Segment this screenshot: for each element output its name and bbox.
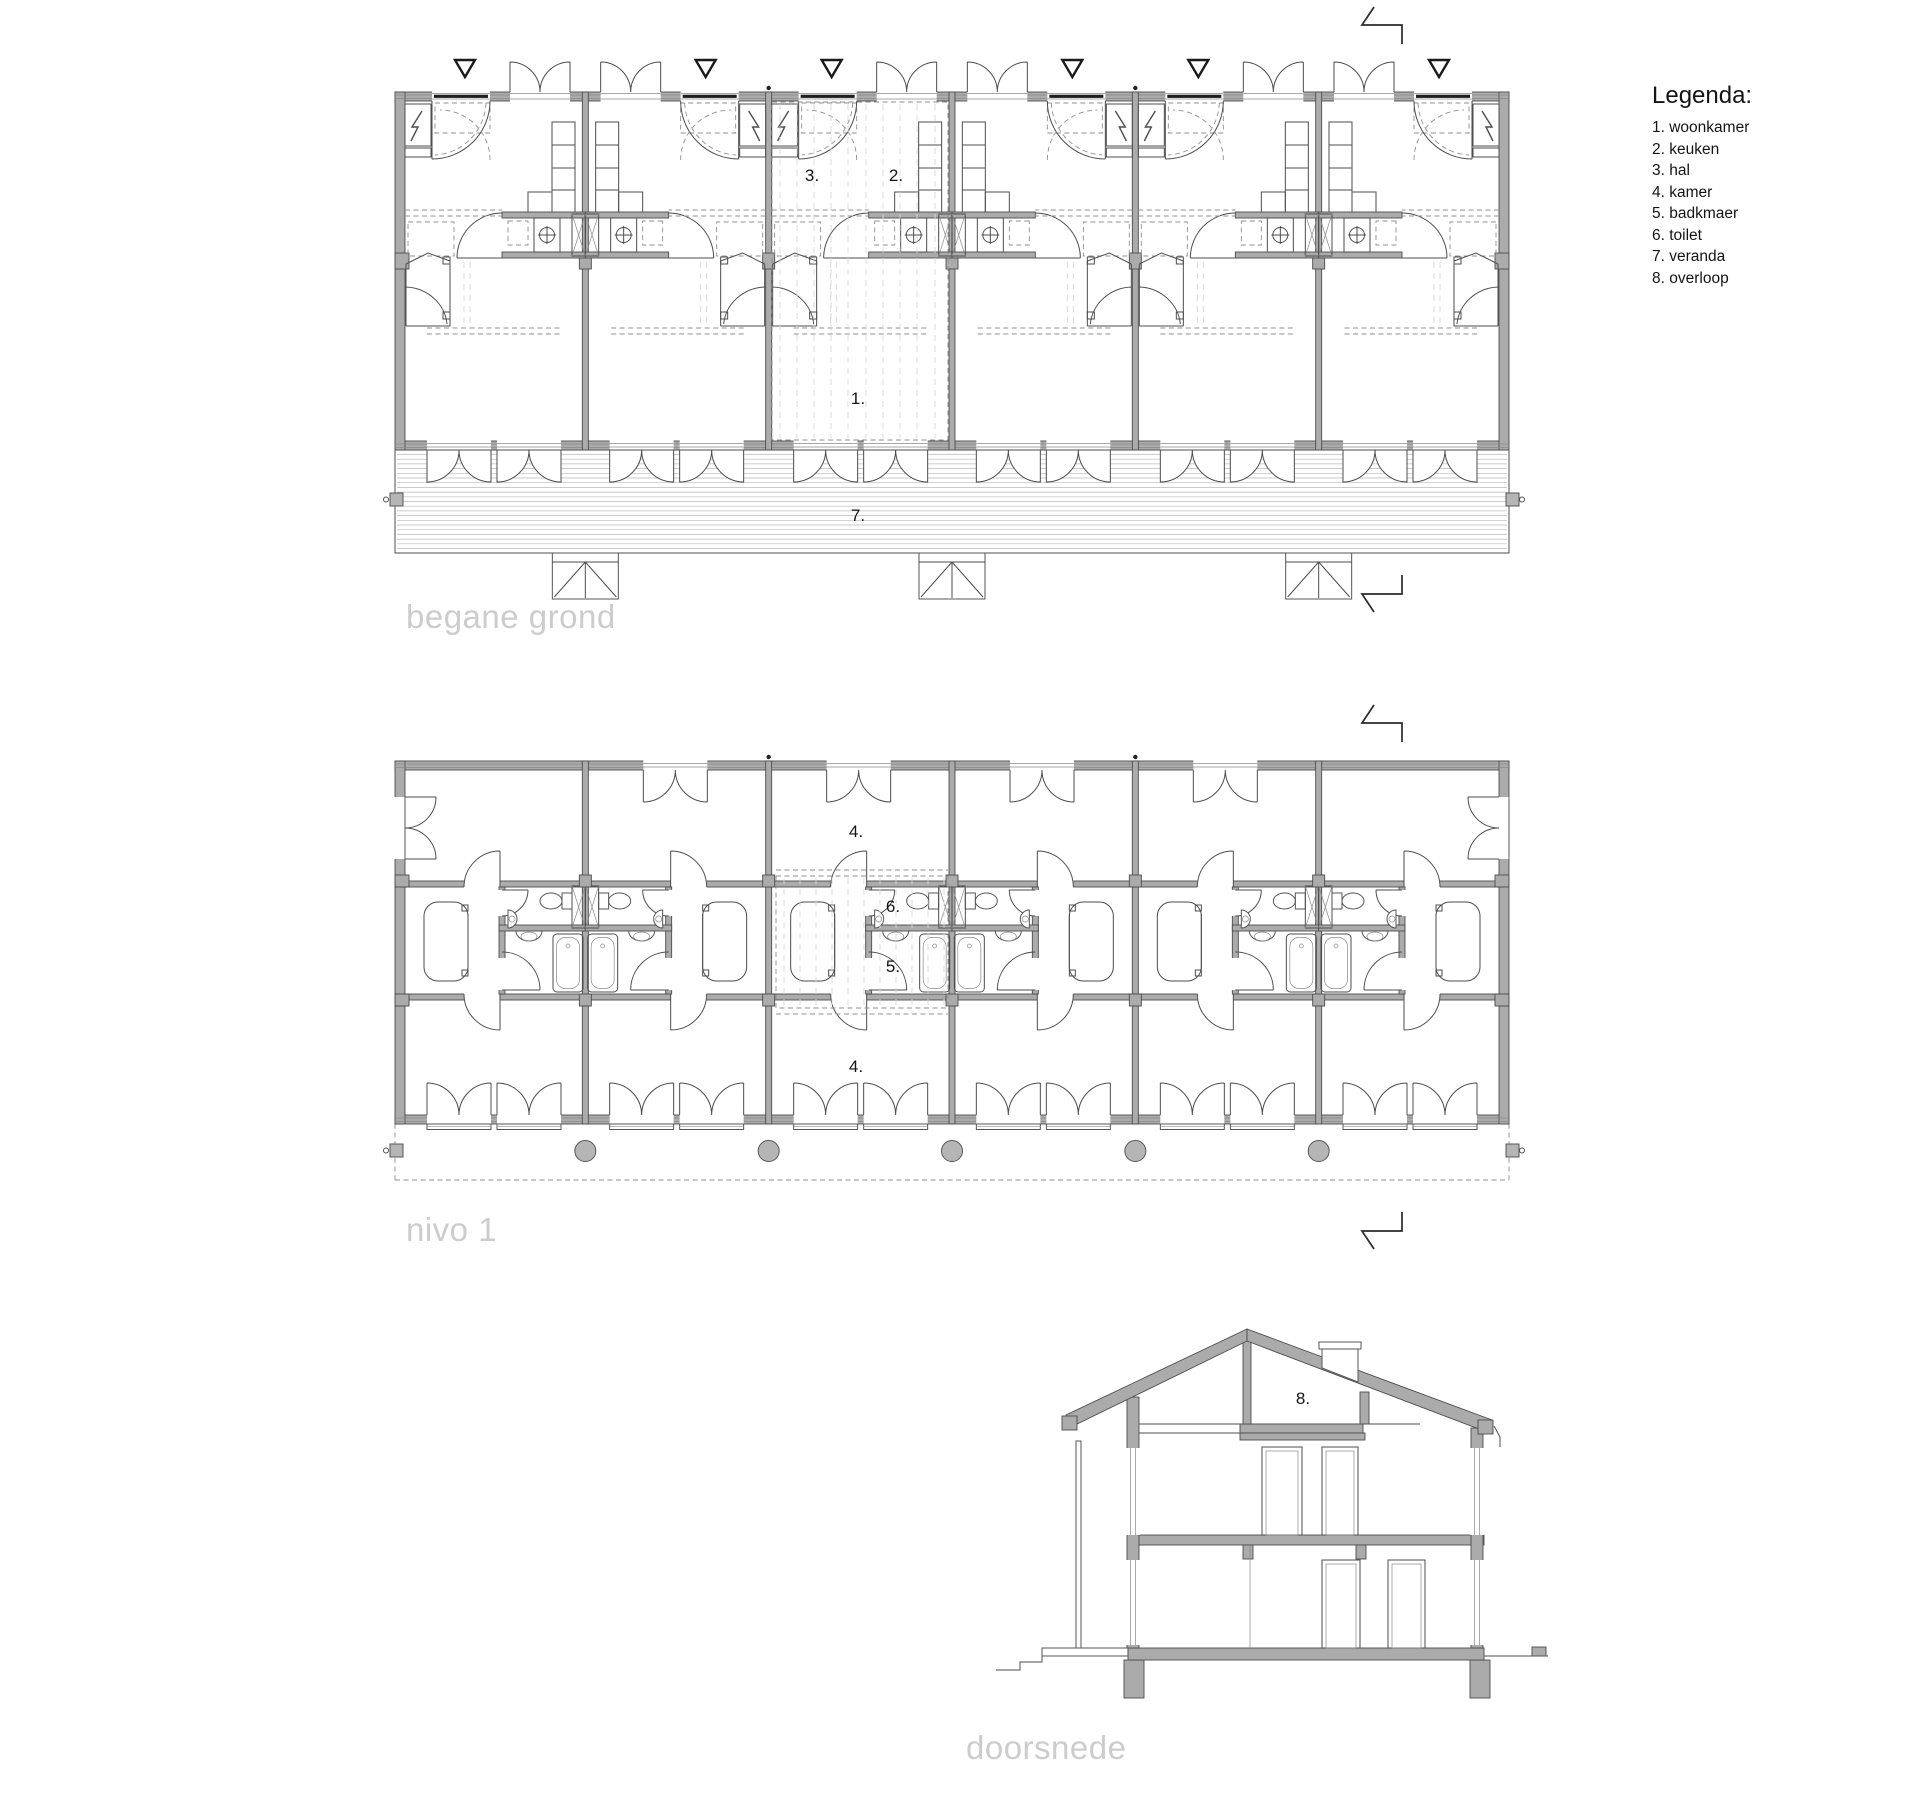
dwelling-unit [952,60,1132,482]
room-label-keuken: 2. [889,166,903,185]
legend-item: 1. woonkamer [1652,117,1752,139]
legend-item: 4. kamer [1652,182,1752,204]
plan-title-level1: nivo 1 [406,1211,497,1249]
room-label-overloop: 8. [1296,1389,1310,1408]
stair-step-icon [1286,553,1352,599]
room-label-toilet: 6. [886,897,900,916]
legend-item: 3. hal [1652,160,1752,182]
legend-item: 7. veranda [1652,246,1752,268]
plan-title-section: doorsnede [966,1729,1126,1767]
veranda-outline-dashed [384,1124,1525,1180]
room-label-kamer-bottom: 4. [849,1057,863,1076]
foundation [1470,1660,1490,1698]
dwelling-unit [952,851,1135,1130]
drawing-sheet: 3. 2. 1. 7. [0,0,1920,1794]
dwelling-unit [585,851,768,1130]
section-cut-icon [1362,1212,1402,1249]
legend-title: Legenda: [1652,82,1752,110]
dwelling-unit [585,60,765,482]
room-label-veranda: 7. [851,506,865,525]
stair-step-icon [919,553,985,599]
dwelling-unit [405,60,585,482]
dwelling-unit [1135,851,1318,1130]
ground-slab [1128,1648,1484,1660]
dwelling-unit [772,60,952,482]
room-label-woonkamer: 1. [851,389,865,408]
legend-item: 2. keuken [1652,139,1752,161]
dwelling-unit [1138,60,1318,482]
legend-item: 6. toilet [1652,225,1752,247]
legend: Legenda: 1. woonkamer 2. keuken 3. hal 4… [1652,82,1752,289]
legend-item: 8. overloop [1652,268,1752,290]
foundation [1124,1660,1144,1698]
section-cut-icon [1362,705,1402,742]
dwelling-unit [1319,851,1502,1130]
first-floor-slab [1128,1535,1484,1545]
section-cut-icon [1362,7,1402,44]
room-label-hal: 3. [805,166,819,185]
dwelling-unit [1319,60,1499,482]
veranda-end-post [390,493,403,506]
legend-item: 5. badkmaer [1652,203,1752,225]
level1-plan: 4. 6. 5. 4. [384,755,1525,1180]
dwelling-unit [402,851,585,1130]
section-drawing: 8. [996,1329,1548,1698]
veranda-post [1076,1441,1081,1648]
veranda-end-post [1506,493,1519,506]
section-cut-icon [1362,575,1402,612]
veranda-steps [552,553,1351,599]
architectural-drawing: 3. 2. 1. 7. [0,0,1920,1794]
roof-left [1066,1329,1247,1427]
room-label-kamer-top: 4. [849,822,863,841]
highlighted-unit-overlay [776,870,948,1014]
ground-floor-plan: 3. 2. 1. 7. [384,60,1525,599]
chimney [1322,1348,1358,1382]
roof-right [1247,1329,1492,1432]
plan-title-ground: begane grond [406,598,616,636]
stair-step-icon [552,553,618,599]
attic-floor [1240,1424,1363,1433]
section-cut-icons [1362,7,1402,1249]
room-label-badkamer: 5. [886,957,900,976]
dwelling-unit [769,851,952,1130]
